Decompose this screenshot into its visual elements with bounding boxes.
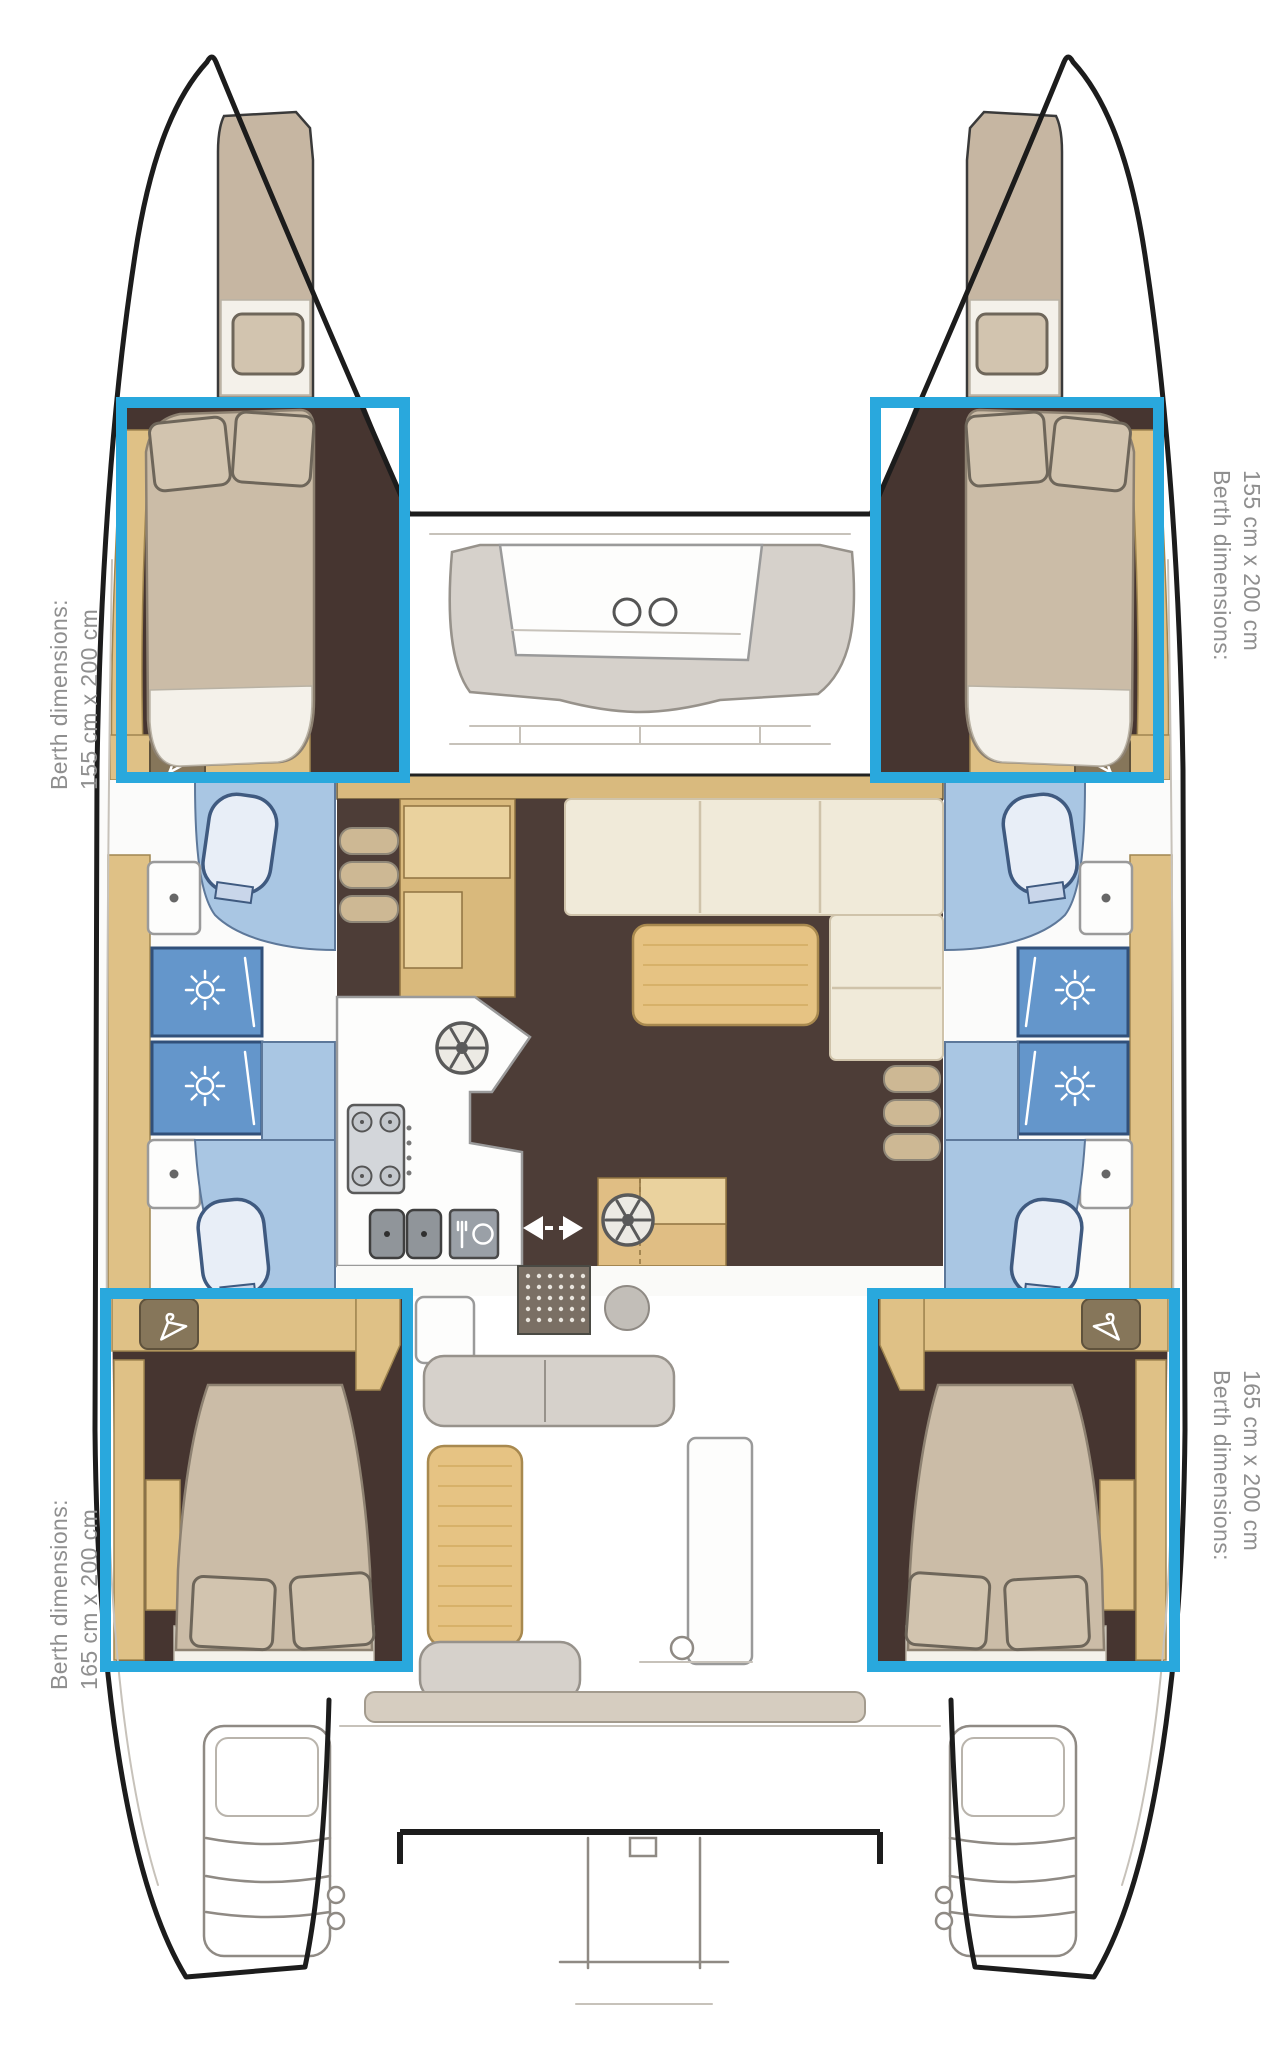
galley-round-sink-icon (437, 1023, 487, 1073)
berth-label-title: Berth dimensions: (1208, 1370, 1236, 1690)
nav-wheel-icon (603, 1195, 653, 1245)
berth-highlight-forward-starboard (870, 397, 1164, 783)
salon-sofa (565, 799, 943, 915)
salon-table (633, 925, 818, 1025)
berth-label-size: 155 cm x 200 cm (75, 470, 103, 790)
berth-label-size: 165 cm x 200 cm (75, 1370, 103, 1690)
forward-cockpit (450, 545, 854, 744)
entry-mat (518, 1266, 590, 1334)
stove-icon (348, 1105, 412, 1193)
berth-label-size: 155 cm x 200 cm (1238, 470, 1266, 790)
cup-holder (614, 599, 640, 625)
berth-label-forward-starboard: Berth dimensions: 155 cm x 200 cm (1205, 470, 1269, 790)
berth-label-title: Berth dimensions: (45, 1370, 73, 1690)
transom-seat (365, 1692, 865, 1722)
nav-station (598, 1178, 726, 1266)
salon (337, 775, 943, 1334)
berth-label-aft-port: Berth dimensions: 165 cm x 200 cm (42, 1370, 106, 1690)
cockpit-bench (424, 1356, 674, 1426)
berth-label-forward-port: Berth dimensions: 155 cm x 200 cm (42, 470, 106, 790)
berth-label-size: 165 cm x 200 cm (1238, 1370, 1266, 1690)
berth-label-title: Berth dimensions: (45, 470, 73, 790)
helm-console (688, 1438, 752, 1664)
aft-cockpit (340, 1286, 940, 1726)
floor-plan-image (0, 0, 1280, 2069)
berth-highlight-aft-starboard (867, 1288, 1180, 1672)
berth-label-title: Berth dimensions: (1208, 470, 1236, 790)
stairs-starboard (884, 1066, 940, 1160)
berth-highlight-forward-port (116, 397, 410, 783)
dishwasher-icon (450, 1210, 498, 1258)
berth-highlight-aft-port (100, 1288, 413, 1672)
stern-beam (400, 1832, 880, 2004)
floor-plan-page: Berth dimensions: 155 cm x 200 cm Berth … (0, 0, 1280, 2069)
berth-label-aft-starboard: Berth dimensions: 165 cm x 200 cm (1205, 1370, 1269, 1690)
cockpit-table (428, 1446, 522, 1646)
cup-holder (650, 599, 676, 625)
